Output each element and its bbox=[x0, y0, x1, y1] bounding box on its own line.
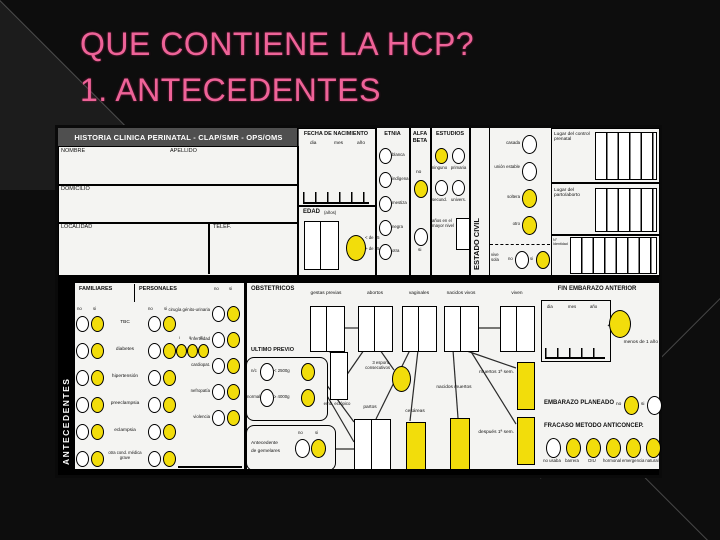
edad-gt35-label: > de 35 bbox=[365, 246, 379, 251]
obstetricos-title: OBSTETRICOS bbox=[251, 286, 294, 292]
personales-diabetes-si-circle bbox=[163, 343, 176, 359]
extra-nefropatia-si-circle bbox=[227, 384, 240, 400]
apellido-label: APELLIDO bbox=[170, 148, 197, 154]
ultimo-normal-circle bbox=[260, 389, 274, 407]
muertos-1sem-yellow-box bbox=[517, 362, 535, 410]
gestas-previas-label: gestas previas bbox=[296, 291, 356, 296]
etnia-blanca-circle bbox=[379, 148, 392, 164]
viven-cell bbox=[516, 306, 535, 352]
estado-civil-title: ESTADO CIVIL bbox=[472, 132, 481, 270]
fracaso-barrera-circle bbox=[566, 438, 581, 458]
personales-preeclampsia-no-circle bbox=[148, 397, 161, 413]
etnia-blanca-label: blanca bbox=[392, 152, 405, 157]
domicilio-box bbox=[58, 184, 299, 224]
extra-cardiopatia-label: cardiopat. bbox=[162, 362, 210, 367]
alfabeta-title-line1: ALFA bbox=[410, 131, 430, 137]
estado-civil-divider bbox=[469, 128, 471, 275]
ultimo-peso-bajo-circle bbox=[301, 363, 315, 381]
planeado-si-circle bbox=[647, 396, 662, 415]
estudios-secundaria-circle bbox=[435, 180, 448, 196]
extra-violencia-no-circle bbox=[212, 410, 225, 426]
familiares-tbc-si-circle bbox=[91, 316, 104, 332]
estado-union-circle bbox=[522, 162, 537, 181]
identidad-label: N° Identidad bbox=[553, 238, 569, 246]
telef-divider bbox=[208, 223, 210, 274]
fracaso-natural-circle bbox=[646, 438, 661, 458]
etnia-title: ETNIA bbox=[376, 131, 409, 137]
ectopico-cell bbox=[330, 352, 348, 400]
form-header-bar: HISTORIA CLINICA PERINATAL - CLAP/SMR - … bbox=[58, 128, 299, 146]
gemelares-si-circle bbox=[311, 439, 326, 458]
gemelares-label-line1: Antecedente bbox=[251, 441, 278, 446]
slide-title-line2: 1. ANTECEDENTES bbox=[80, 72, 381, 109]
extra-violencia-label: violencia bbox=[162, 414, 210, 419]
ultimo-nc-label: n/c bbox=[251, 368, 257, 373]
espont-label: 3 espont. consecutivos bbox=[348, 360, 390, 370]
familiares-header: FAMILIARES bbox=[79, 286, 112, 292]
ultimo-peso-alto-label: ≥ 4000g bbox=[274, 394, 290, 399]
extra-si-header: si bbox=[229, 286, 232, 291]
lugar-parto-cells bbox=[595, 188, 657, 232]
estudios-mayor-nivel-label: años en el mayor nivel bbox=[432, 218, 455, 228]
estudios-anos-cell bbox=[456, 218, 470, 250]
fecha-nacimiento-title: FECHA DE NACIMIENTO bbox=[299, 131, 373, 137]
personales-eclampsia-no-circle bbox=[148, 424, 161, 440]
slide: QUE CONTIENE LA HCP? 1. ANTECEDENTES HIS… bbox=[0, 0, 720, 540]
form-bottom-bar bbox=[58, 469, 659, 475]
fracaso-hormonal-circle bbox=[606, 438, 621, 458]
nacidos-vivos-label: nacidos vivos bbox=[434, 291, 488, 296]
fin-digit-ticks bbox=[545, 348, 605, 359]
fracaso-emergencia-circle bbox=[626, 438, 641, 458]
abortos-cell bbox=[374, 306, 393, 352]
familiares-hipertension-si-circle bbox=[91, 370, 104, 386]
extra-infertilidad-no-circle bbox=[212, 332, 225, 348]
localidad-box bbox=[58, 222, 299, 277]
fracaso-title: FRACASO METODO ANTICONCEP. bbox=[544, 423, 660, 429]
lugar-control-cells bbox=[595, 132, 657, 180]
partos-label: partos bbox=[348, 405, 392, 410]
antecedentes-sidebar: ANTECEDENTES bbox=[58, 283, 75, 469]
vive-sola-si-circle bbox=[536, 251, 550, 269]
row-hipertension-label: hipertensión bbox=[104, 374, 146, 379]
estudios-ninguno-circle bbox=[435, 148, 448, 164]
slide-title-line1: QUE CONTIENE LA HCP? bbox=[80, 26, 474, 63]
familiares-eclampsia-si-circle bbox=[91, 424, 104, 440]
lugar-control-label: Lugar del control prenatal bbox=[554, 132, 592, 142]
ultimo-previo-title: ULTIMO PREVIO bbox=[251, 347, 294, 353]
diabetes-tipo1-circle bbox=[176, 344, 187, 358]
vive-sola-label: vive sola bbox=[491, 252, 507, 262]
extra-cardiopatia-si-circle bbox=[227, 358, 240, 374]
gemelares-si-header: si bbox=[315, 430, 318, 435]
etnia-otra-circle bbox=[379, 244, 392, 260]
personales-preeclampsia-si-circle bbox=[163, 397, 176, 413]
familiares-diabetes-no-circle bbox=[76, 343, 89, 359]
row-tbc-label: TBC bbox=[104, 320, 146, 325]
personales-tbc-no-circle bbox=[148, 316, 161, 332]
estudios-universitaria-label: univers. bbox=[448, 197, 469, 202]
diabetes-tipo2-circle bbox=[187, 344, 198, 358]
despues-1sem-label: después 1ª sem. bbox=[472, 430, 514, 435]
alfabeta-si-label: si bbox=[418, 248, 421, 253]
fracaso-emergencia-label: emergencia bbox=[622, 458, 642, 463]
despues-1sem-yellow-box bbox=[517, 417, 535, 465]
vive-sola-si-label: si bbox=[530, 256, 533, 261]
etnia-negra-circle bbox=[379, 220, 392, 236]
extra-violencia-si-circle bbox=[227, 410, 240, 426]
fin-ano-label: año bbox=[590, 304, 597, 309]
fin-embarazo-title: FIN EMBARAZO ANTERIOR bbox=[536, 286, 658, 292]
fracaso-barrera-label: barrera bbox=[562, 458, 582, 463]
estado-dashed-separator bbox=[490, 244, 550, 245]
estado-civil-inner-divider bbox=[489, 128, 490, 275]
estado-soltera-label: soltera bbox=[490, 194, 520, 199]
alfabeta-si-circle bbox=[414, 228, 428, 246]
antecedentes-vertical-label: ANTECEDENTES bbox=[61, 289, 71, 465]
planeado-no-circle bbox=[624, 396, 639, 415]
muertos-1sem-label: muertos 1ª sem. bbox=[472, 370, 514, 375]
fin-dia-label: dia bbox=[547, 304, 553, 309]
familiares-preeclampsia-si-circle bbox=[91, 397, 104, 413]
fecha-mes-label: mes bbox=[334, 141, 343, 146]
estudios-primaria-circle bbox=[452, 148, 465, 164]
extra-cardiopatia-no-circle bbox=[212, 358, 225, 374]
extra-cirugia-label: cirugía génito-urinaria bbox=[162, 307, 210, 312]
estado-otro-label: otro bbox=[490, 221, 520, 226]
edad-extremes-circle bbox=[346, 235, 366, 261]
fracaso-no-usaba-circle bbox=[546, 438, 561, 458]
nacidos-vivos-cell bbox=[460, 306, 479, 352]
familiares-hipertension-no-circle bbox=[76, 370, 89, 386]
vaginales-cell bbox=[418, 306, 437, 352]
fracaso-hormonal-label: hormonal bbox=[602, 458, 622, 463]
abortos-label: abortos bbox=[352, 291, 398, 296]
familiares-si-header: si bbox=[93, 306, 96, 311]
telef-label: TELEF. bbox=[213, 224, 231, 230]
etnia-negra-label: negra bbox=[392, 224, 403, 229]
gemelares-no-circle bbox=[295, 439, 310, 458]
estado-casada-circle bbox=[522, 135, 537, 154]
estado-otro-circle bbox=[522, 216, 537, 235]
etnia-mestiza-circle bbox=[379, 196, 392, 212]
etnia-otra-label: otra bbox=[392, 248, 399, 253]
etnia-mestiza-label: mestiza bbox=[392, 200, 407, 205]
extra-infertilidad-label: infertilidad bbox=[162, 336, 210, 341]
ultimo-peso-bajo-label: < 2500g bbox=[274, 368, 290, 373]
familiares-otra-no-circle bbox=[76, 451, 89, 467]
fracaso-natural-label: natural bbox=[642, 458, 662, 463]
alfabeta-no-label: no bbox=[416, 170, 421, 175]
menos-1-ano-circle bbox=[609, 310, 631, 338]
form-header-title: HISTORIA CLINICA PERINATAL - CLAP/SMR - … bbox=[74, 133, 282, 142]
edad-digit-cell bbox=[320, 221, 339, 270]
vive-sola-no-label: no bbox=[508, 256, 513, 261]
ultimo-normal-label: normal bbox=[247, 394, 260, 399]
lugar-parto-label: Lugar del parto/aborto bbox=[554, 188, 592, 198]
edad-unit-label: (años) bbox=[324, 210, 336, 215]
etnia-indigena-label: indígena bbox=[392, 176, 409, 181]
personales-eclampsia-si-circle bbox=[163, 424, 176, 440]
nacidos-muertos-label: nacidos muertos bbox=[430, 385, 478, 390]
estudios-title: ESTUDIOS bbox=[431, 131, 469, 137]
ultimo-peso-alto-circle bbox=[301, 389, 315, 407]
ultimo-previo-box bbox=[246, 357, 328, 421]
extra-cirugia-no-circle bbox=[212, 306, 225, 322]
familiares-no-header: no bbox=[77, 306, 82, 311]
personales-no-header: no bbox=[148, 306, 153, 311]
personales-diabetes-no-circle bbox=[148, 343, 161, 359]
perinatal-form-image: HISTORIA CLINICA PERINATAL - CLAP/SMR - … bbox=[55, 125, 662, 478]
alfabeta-title-line2: BETA bbox=[410, 138, 430, 144]
estado-soltera-circle bbox=[522, 189, 537, 208]
embarazo-planeado-title: EMBARAZO PLANEADO bbox=[544, 400, 614, 406]
vive-sola-no-circle bbox=[515, 251, 529, 269]
fecha-digit-ticks bbox=[303, 192, 369, 204]
espont-circle bbox=[392, 366, 411, 392]
gestas-cell bbox=[326, 306, 345, 352]
extra-no-header: no bbox=[214, 286, 219, 291]
personales-otra-no-circle bbox=[148, 451, 161, 467]
partos-cell bbox=[371, 419, 391, 471]
cesareas-label: cesáreas bbox=[392, 409, 438, 414]
alfabeta-no-circle bbox=[414, 180, 428, 198]
familiares-otra-si-circle bbox=[91, 451, 104, 467]
fracaso-no-usaba-label: no usaba bbox=[542, 458, 562, 463]
extra-cirugia-si-circle bbox=[227, 306, 240, 322]
cesareas-yellow-box bbox=[406, 422, 426, 471]
estudios-secundaria-label: secund. bbox=[429, 197, 450, 202]
personales-hipertension-si-circle bbox=[163, 370, 176, 386]
personales-hipertension-no-circle bbox=[148, 370, 161, 386]
fecha-ano-label: año bbox=[357, 141, 365, 146]
personales-header: PERSONALES bbox=[139, 286, 177, 292]
menos-1-ano-label: menos de 1 año bbox=[563, 340, 658, 345]
row-eclampsia-label: eclampsia bbox=[104, 428, 146, 433]
personales-otra-si-circle bbox=[163, 451, 176, 467]
extra-nefropatia-label: nefropatía bbox=[162, 388, 210, 393]
row-preeclampsia-label: preeclampsia bbox=[104, 401, 146, 406]
estudios-universitaria-circle bbox=[452, 180, 465, 196]
localidad-label: LOCALIDAD bbox=[61, 224, 92, 230]
signature-line bbox=[178, 466, 242, 468]
etnia-indigena-circle bbox=[379, 172, 392, 188]
section-divider-bar bbox=[58, 275, 659, 283]
gemelares-no-header: no bbox=[298, 430, 303, 435]
identidad-cells bbox=[570, 237, 657, 274]
extra-nefropatia-no-circle bbox=[212, 384, 225, 400]
familiares-diabetes-si-circle bbox=[91, 343, 104, 359]
etnia-divider bbox=[375, 128, 377, 275]
personales-tbc-si-circle bbox=[163, 316, 176, 332]
estado-casada-label: casada bbox=[490, 140, 520, 145]
domicilio-label: DOMICILIO bbox=[61, 186, 90, 192]
extra-infertilidad-si-circle bbox=[227, 332, 240, 348]
ultimo-nc-circle bbox=[260, 363, 274, 381]
familiares-personales-divider bbox=[134, 284, 135, 302]
viven-label: viven bbox=[494, 291, 540, 296]
diabetes-gestacional-circle bbox=[198, 344, 209, 358]
estudios-primaria-label: primaria bbox=[448, 165, 469, 170]
estado-union-label: unión estable bbox=[490, 164, 520, 169]
familiares-tbc-no-circle bbox=[76, 316, 89, 332]
fracaso-diu-label: DIU bbox=[582, 458, 602, 463]
fecha-dia-label: dia bbox=[310, 141, 316, 146]
gemelares-label-line2: de gemelares bbox=[251, 449, 280, 454]
nombre-label: NOMBRE bbox=[61, 148, 85, 154]
row-otra-cond-label: otra cond. médica grave bbox=[104, 450, 146, 460]
row-diabetes-label: diabetes bbox=[104, 347, 146, 352]
estudios-ninguno-label: ninguno bbox=[429, 165, 450, 170]
planeado-si-label: si bbox=[641, 402, 644, 407]
fracaso-diu-circle bbox=[586, 438, 601, 458]
fin-mes-label: mes bbox=[568, 304, 576, 309]
edad-lt15-label: < de 15 bbox=[365, 235, 379, 240]
familiares-eclampsia-no-circle bbox=[76, 424, 89, 440]
alfabeta-divider bbox=[409, 128, 411, 275]
familiares-preeclampsia-no-circle bbox=[76, 397, 89, 413]
nacidos-muertos-yellow-box bbox=[450, 418, 470, 471]
planeado-no-label: no bbox=[616, 402, 621, 407]
edad-label: EDAD bbox=[303, 209, 320, 215]
